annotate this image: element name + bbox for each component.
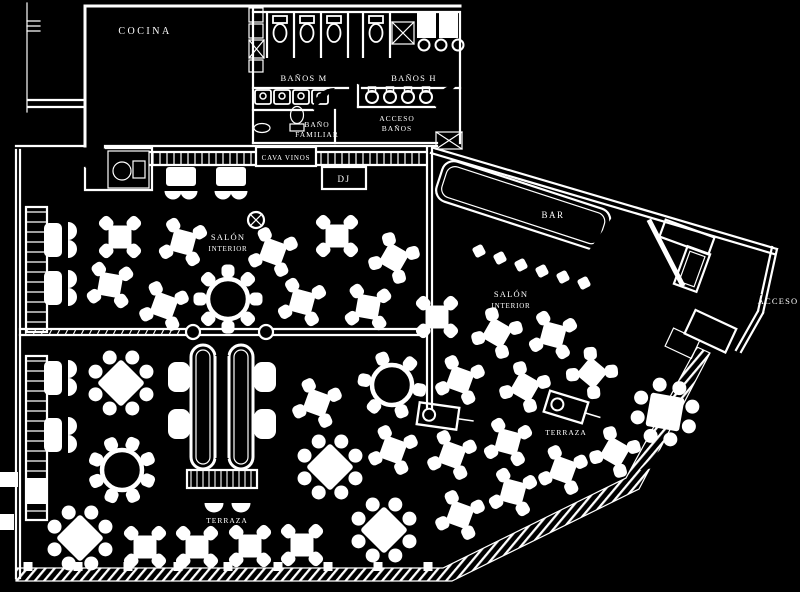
chair bbox=[125, 401, 139, 415]
label-salon-interior-2a: SALÓN bbox=[494, 289, 528, 299]
chair bbox=[388, 498, 402, 512]
label-acceso: ACCESO bbox=[758, 296, 799, 306]
chair bbox=[604, 364, 618, 378]
chair bbox=[48, 542, 62, 556]
chair bbox=[103, 351, 117, 365]
chair bbox=[231, 191, 248, 200]
chair bbox=[612, 463, 628, 479]
table-four-seat bbox=[434, 489, 487, 542]
table-four-seat bbox=[487, 466, 539, 518]
chair bbox=[367, 255, 383, 271]
chair bbox=[348, 449, 362, 463]
table-four-seat bbox=[434, 354, 487, 407]
chair bbox=[672, 381, 686, 395]
label-salon-interior-1b: INTERIOR bbox=[208, 245, 247, 253]
chair bbox=[583, 347, 597, 361]
table-eight-seat bbox=[48, 506, 113, 571]
mens-door-arc bbox=[358, 65, 378, 85]
chair bbox=[68, 222, 77, 240]
chair bbox=[62, 556, 76, 570]
chair bbox=[98, 520, 112, 534]
chair bbox=[602, 425, 618, 441]
chair bbox=[631, 410, 645, 424]
table-four-seat bbox=[97, 214, 143, 260]
table-eight-seat bbox=[89, 351, 154, 416]
table-four-seat bbox=[498, 360, 552, 414]
chair bbox=[352, 534, 366, 548]
bar-stool bbox=[556, 270, 571, 285]
chair bbox=[587, 385, 601, 399]
chair bbox=[312, 435, 326, 449]
chair bbox=[139, 365, 153, 379]
table-four-seat bbox=[227, 523, 273, 569]
wall-table-two-seat bbox=[44, 417, 77, 453]
chair bbox=[89, 387, 103, 401]
service-station bbox=[417, 402, 476, 432]
bar-stool bbox=[493, 251, 508, 266]
table-four-seat bbox=[138, 280, 191, 333]
chair bbox=[522, 398, 538, 414]
banquette-benches bbox=[26, 207, 47, 520]
table-four-seat bbox=[247, 226, 300, 279]
chair bbox=[334, 435, 348, 449]
label-salon-interior-2b: INTERIOR bbox=[491, 302, 530, 310]
label-cocina: COCINA bbox=[118, 26, 171, 37]
chair bbox=[254, 362, 276, 392]
label-terraza-1: TERRAZA bbox=[545, 428, 587, 437]
table-round bbox=[357, 350, 427, 419]
chair bbox=[566, 368, 580, 382]
fence-post bbox=[274, 562, 283, 571]
chair bbox=[357, 373, 372, 388]
fence-post bbox=[324, 562, 333, 571]
table-eight-seat bbox=[298, 435, 363, 500]
chair bbox=[232, 503, 251, 513]
chair bbox=[68, 360, 77, 378]
table-four-seat bbox=[85, 260, 135, 310]
chair bbox=[215, 191, 232, 200]
chair bbox=[168, 362, 190, 392]
bar-stool bbox=[577, 276, 592, 291]
table-round bbox=[194, 265, 263, 334]
table-four-seat bbox=[470, 306, 524, 360]
chair bbox=[298, 449, 312, 463]
table-four-seat bbox=[566, 347, 619, 400]
chair bbox=[68, 378, 77, 396]
table-four-seat bbox=[367, 231, 421, 285]
chair bbox=[412, 382, 427, 397]
table-four-seat bbox=[426, 429, 479, 482]
door-arc bbox=[85, 148, 105, 168]
bar-stool bbox=[472, 244, 487, 259]
chair bbox=[405, 245, 421, 261]
round-column bbox=[248, 212, 264, 228]
chair bbox=[98, 542, 112, 556]
chair bbox=[388, 548, 402, 562]
chair bbox=[348, 471, 362, 485]
chair bbox=[298, 471, 312, 485]
table-four-seat bbox=[279, 522, 325, 568]
wall-table-two-seat bbox=[44, 360, 77, 396]
label-bano-familiar-2: FAMILIAR bbox=[295, 130, 339, 139]
wall-stub bbox=[0, 514, 14, 530]
chair bbox=[125, 351, 139, 365]
table-four-seat bbox=[157, 216, 209, 268]
label-bar: BAR bbox=[541, 210, 564, 220]
bar-stool bbox=[535, 264, 550, 279]
family-door-arc bbox=[313, 88, 335, 110]
chair bbox=[682, 419, 696, 433]
chair bbox=[366, 498, 380, 512]
chair bbox=[494, 344, 510, 360]
chair bbox=[366, 548, 380, 562]
table-four-seat bbox=[343, 282, 393, 332]
table-four-seat bbox=[276, 276, 328, 328]
chair bbox=[381, 231, 397, 247]
shaft-box bbox=[392, 22, 414, 44]
restaurant-floorplan: COCINA BAÑOS M BAÑOS H BAÑO FAMILIAR ACC… bbox=[0, 0, 800, 592]
column bbox=[259, 325, 273, 339]
label-cava-vinos: CAVA VINOS bbox=[262, 154, 311, 162]
sink-counter bbox=[417, 13, 436, 38]
table-four-seat bbox=[291, 377, 344, 430]
chair bbox=[222, 265, 235, 278]
label-terraza-2: TERRAZA bbox=[206, 516, 248, 525]
label-salon-interior-1a: SALÓN bbox=[211, 232, 245, 242]
table-four-seat bbox=[482, 416, 534, 468]
label-banos-m: BAÑOS M bbox=[281, 73, 328, 83]
chair bbox=[685, 400, 699, 414]
urinals bbox=[366, 87, 432, 103]
table-round bbox=[88, 436, 157, 505]
shaft-box-bar bbox=[436, 132, 462, 149]
label-acceso-banos-1: ACCESO bbox=[379, 114, 415, 123]
table-four-seat bbox=[537, 444, 590, 497]
wall-table-two-seat bbox=[44, 222, 77, 258]
table-four-seat bbox=[174, 524, 220, 570]
chair bbox=[68, 270, 77, 288]
chair bbox=[634, 391, 648, 405]
communal-table-group bbox=[168, 345, 276, 513]
table-four-seat bbox=[122, 524, 168, 570]
chair bbox=[194, 293, 207, 306]
fence-post bbox=[424, 562, 433, 571]
fence-post bbox=[24, 562, 33, 571]
chair bbox=[84, 556, 98, 570]
chair bbox=[165, 191, 182, 200]
bar-stool bbox=[514, 258, 529, 273]
column bbox=[186, 325, 200, 339]
chair bbox=[103, 401, 117, 415]
chair bbox=[536, 374, 552, 390]
chair bbox=[181, 191, 198, 200]
label-banos-h: BAÑOS H bbox=[391, 73, 436, 83]
chair bbox=[205, 503, 224, 513]
chair bbox=[312, 485, 326, 499]
mens-sinks bbox=[419, 40, 464, 51]
chair bbox=[498, 384, 514, 400]
chair bbox=[644, 429, 658, 443]
fence-post bbox=[374, 562, 383, 571]
counter-table-two-seat bbox=[215, 167, 248, 200]
label-dj: DJ bbox=[337, 174, 350, 184]
chair bbox=[68, 240, 77, 258]
floorplan-canvas: COCINA BAÑOS M BAÑOS H BAÑO FAMILIAR ACC… bbox=[0, 0, 800, 592]
bench-chairs bbox=[205, 503, 251, 513]
chair bbox=[588, 449, 604, 465]
chair bbox=[139, 387, 153, 401]
chair bbox=[653, 378, 667, 392]
label-acceso-banos-2: BAÑOS bbox=[382, 123, 412, 133]
stall-door-arcs bbox=[274, 40, 388, 58]
chair bbox=[402, 512, 416, 526]
chair bbox=[48, 520, 62, 534]
chair bbox=[84, 506, 98, 520]
table-four-seat bbox=[414, 294, 460, 340]
table-eight-seat bbox=[352, 498, 417, 563]
wall-stub bbox=[0, 472, 18, 487]
chair bbox=[62, 506, 76, 520]
chair bbox=[168, 409, 190, 439]
chair bbox=[402, 534, 416, 548]
chair bbox=[68, 288, 77, 306]
chair bbox=[508, 320, 524, 336]
label-bano-familiar-1: BAÑO bbox=[304, 119, 329, 129]
chair bbox=[254, 409, 276, 439]
counter-table-two-seat bbox=[165, 167, 198, 200]
chair bbox=[352, 512, 366, 526]
chair bbox=[68, 417, 77, 435]
chair bbox=[250, 293, 263, 306]
chair bbox=[222, 321, 235, 334]
wall-table-two-seat bbox=[44, 270, 77, 306]
chair bbox=[391, 269, 407, 285]
furniture-layer bbox=[44, 167, 699, 570]
sign-fixture bbox=[254, 124, 270, 133]
service-room bbox=[85, 148, 152, 190]
chair bbox=[68, 435, 77, 453]
chair bbox=[663, 432, 677, 446]
chair bbox=[89, 365, 103, 379]
sink-counter bbox=[439, 13, 458, 38]
table-four-seat bbox=[314, 213, 360, 259]
chair bbox=[470, 330, 486, 346]
chair bbox=[512, 360, 528, 376]
table-four-seat bbox=[527, 309, 579, 361]
toilets bbox=[273, 16, 383, 42]
chair bbox=[334, 485, 348, 499]
table-four-seat bbox=[367, 424, 420, 477]
